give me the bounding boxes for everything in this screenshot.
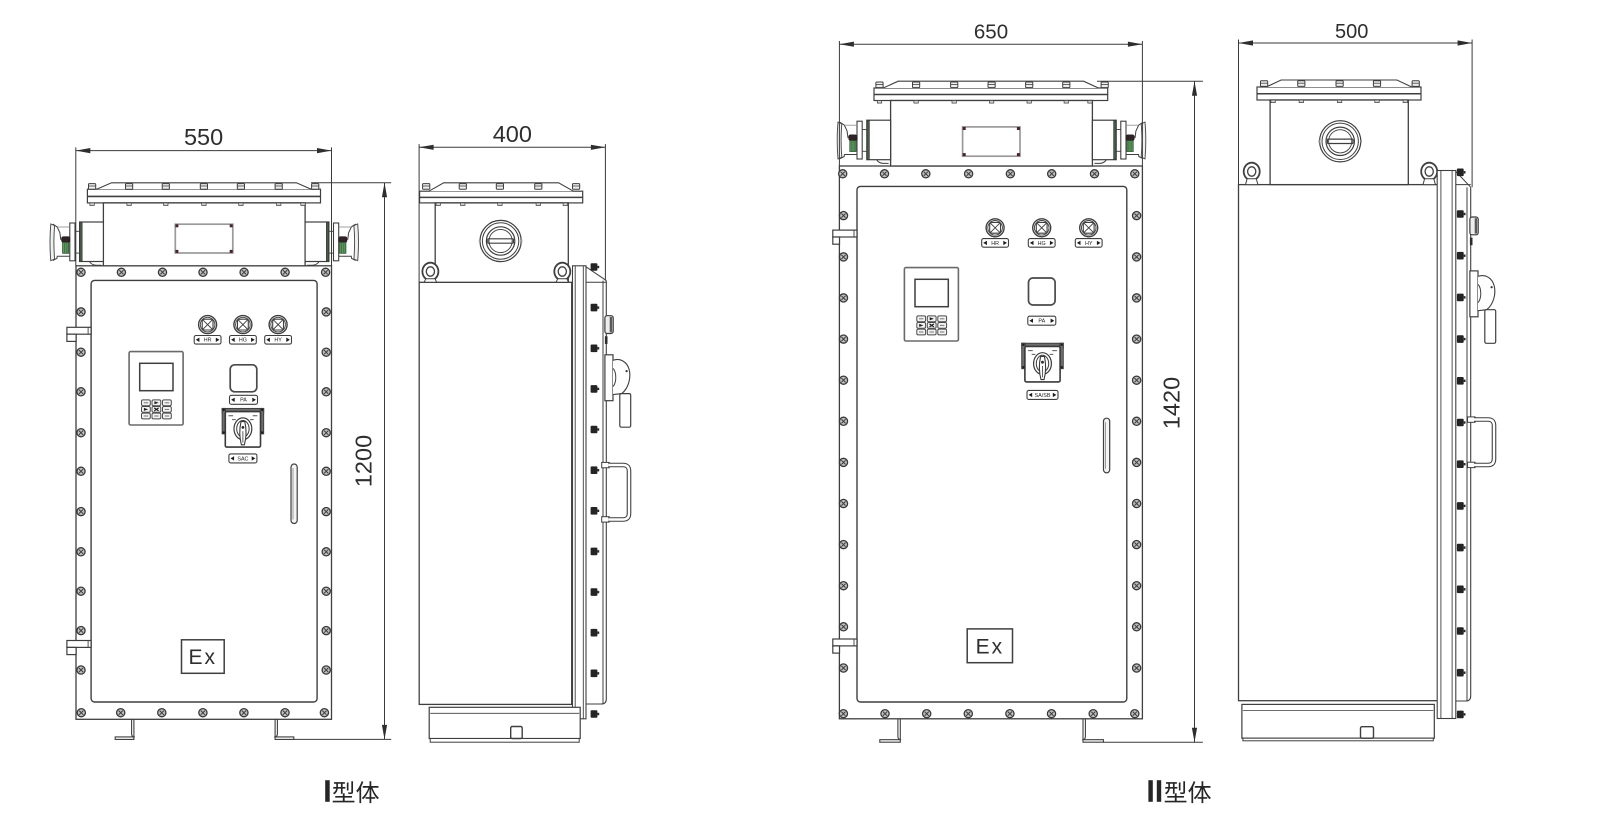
svg-text:HG: HG (239, 338, 247, 344)
svg-text:1200: 1200 (351, 435, 377, 487)
svg-text:550: 550 (184, 124, 223, 150)
svg-text:400: 400 (493, 121, 532, 147)
svg-text:SA/SB: SA/SB (1035, 393, 1051, 399)
svg-text:PA: PA (1038, 319, 1045, 325)
svg-text:650: 650 (974, 21, 1008, 44)
svg-text:HR: HR (204, 338, 212, 344)
svg-text:PA: PA (240, 398, 247, 404)
svg-text:SAC: SAC (237, 456, 248, 462)
svg-text:HY: HY (274, 338, 282, 344)
svg-text:HG: HG (1038, 241, 1046, 247)
svg-text:HR: HR (991, 241, 999, 247)
svg-text:500: 500 (1335, 21, 1368, 43)
svg-text:Ex: Ex (976, 635, 1005, 658)
svg-text:Ex: Ex (189, 646, 218, 669)
svg-text:1420: 1420 (1159, 377, 1185, 429)
svg-text:HY: HY (1085, 241, 1093, 247)
